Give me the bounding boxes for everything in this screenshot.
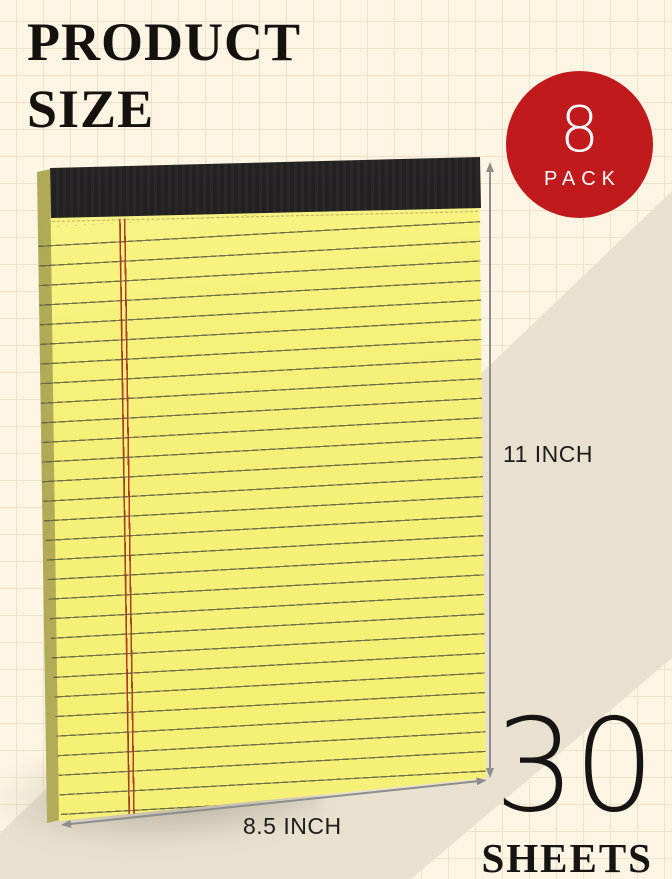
dimension-line-vertical	[489, 169, 491, 771]
product-size-banner: 11 INCH 8.5 INCH PRODUCT SIZE 8 PACK 30 …	[0, 0, 672, 879]
height-dimension-label: 11 INCH	[503, 441, 593, 468]
pack-count: 8	[560, 99, 599, 161]
title-line-2: SIZE	[27, 76, 301, 143]
pack-count-badge: 8 PACK	[506, 71, 653, 218]
page-title: PRODUCT SIZE	[27, 9, 301, 143]
sheet-count: 30	[481, 703, 653, 831]
pack-label: PACK	[544, 168, 621, 191]
title-line-1: PRODUCT	[27, 9, 301, 76]
width-dimension-label: 8.5 INCH	[243, 813, 342, 840]
sheet-count-label: SHEETS	[481, 838, 653, 879]
sheet-count-block: 30 SHEETS	[481, 703, 653, 879]
height-dimension-arrow	[485, 162, 495, 778]
